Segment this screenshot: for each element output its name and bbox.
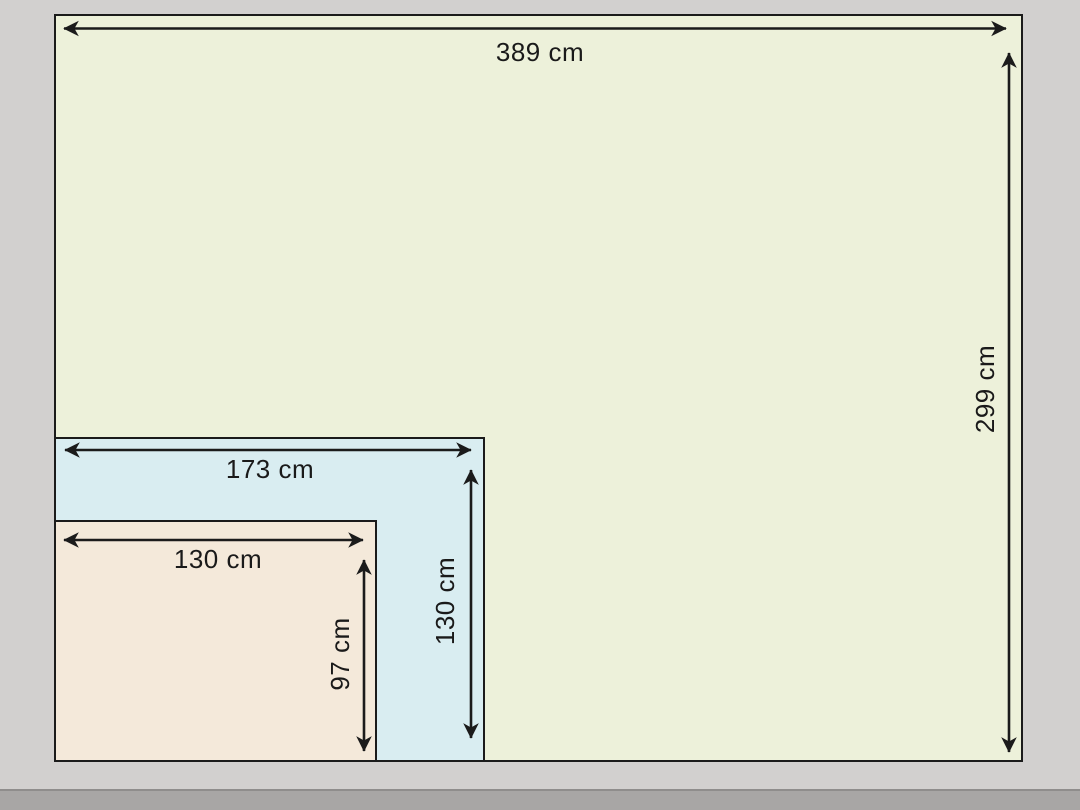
middle-height-label: 130 cm [432,557,458,645]
middle-width-label: 173 cm [226,456,314,482]
bottom-taskbar-strip [0,789,1080,810]
outer-height-label: 299 cm [972,345,998,433]
inner-height-label: 97 cm [327,617,353,690]
diagram-canvas: 389 cm 299 cm 173 cm 130 cm 130 cm 97 cm [0,0,1080,810]
outer-width-label: 389 cm [496,39,584,65]
inner-width-label: 130 cm [174,546,262,572]
